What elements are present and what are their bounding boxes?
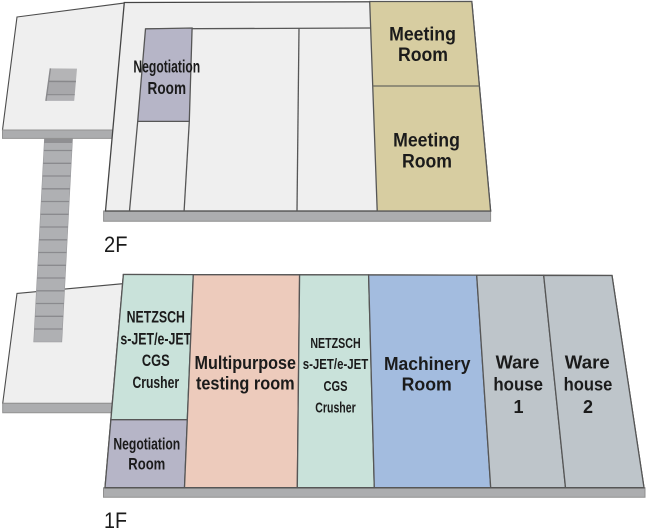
svg-text:house: house: [564, 375, 613, 395]
svg-text:Ware: Ware: [496, 353, 540, 373]
svg-text:Negotiation: Negotiation: [133, 57, 200, 77]
svg-text:Ware: Ware: [565, 353, 610, 373]
svg-text:Machinery: Machinery: [384, 353, 471, 374]
svg-text:Room: Room: [128, 456, 165, 474]
svg-text:Crusher: Crusher: [132, 374, 179, 392]
svg-text:Meeting: Meeting: [393, 130, 460, 152]
svg-text:house: house: [493, 375, 543, 395]
svg-text:NETZSCH: NETZSCH: [127, 308, 185, 326]
svg-text:CGS: CGS: [324, 378, 348, 395]
svg-text:Multipurpose: Multipurpose: [195, 352, 297, 373]
svg-text:Room: Room: [398, 44, 448, 66]
svg-text:Room: Room: [402, 373, 452, 394]
svg-text:s-JET/e-JET: s-JET/e-JET: [120, 330, 191, 348]
svg-text:s-JET/e-JET: s-JET/e-JET: [303, 356, 369, 373]
svg-text:NETZSCH: NETZSCH: [310, 335, 360, 352]
svg-text:Crusher: Crusher: [315, 400, 356, 417]
svg-text:Meeting: Meeting: [389, 23, 456, 45]
svg-text:CGS: CGS: [142, 352, 170, 370]
svg-text:Negotiation: Negotiation: [113, 436, 180, 454]
svg-text:testing room: testing room: [196, 373, 295, 394]
svg-text:Room: Room: [148, 78, 187, 98]
svg-text:2: 2: [583, 397, 593, 417]
svg-text:1F: 1F: [104, 508, 127, 529]
svg-text:Room: Room: [402, 151, 452, 173]
svg-text:2F: 2F: [104, 232, 128, 257]
svg-text:1: 1: [513, 397, 523, 417]
